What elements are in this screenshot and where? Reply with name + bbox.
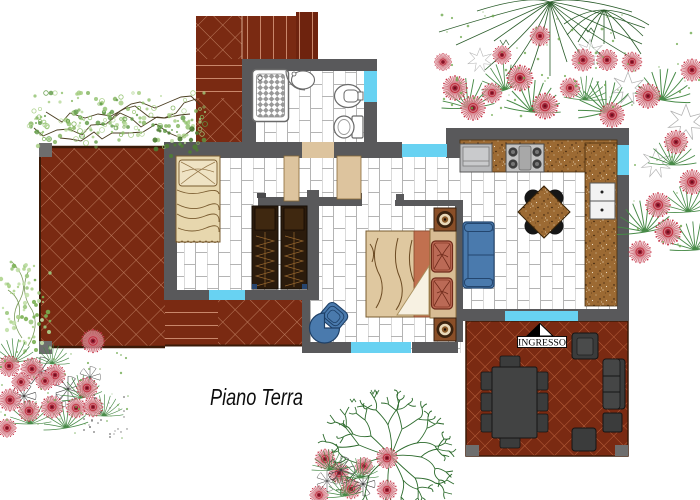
svg-text:INGRESSO: INGRESSO [518, 337, 566, 348]
svg-text:Piano Terra: Piano Terra [210, 384, 303, 410]
